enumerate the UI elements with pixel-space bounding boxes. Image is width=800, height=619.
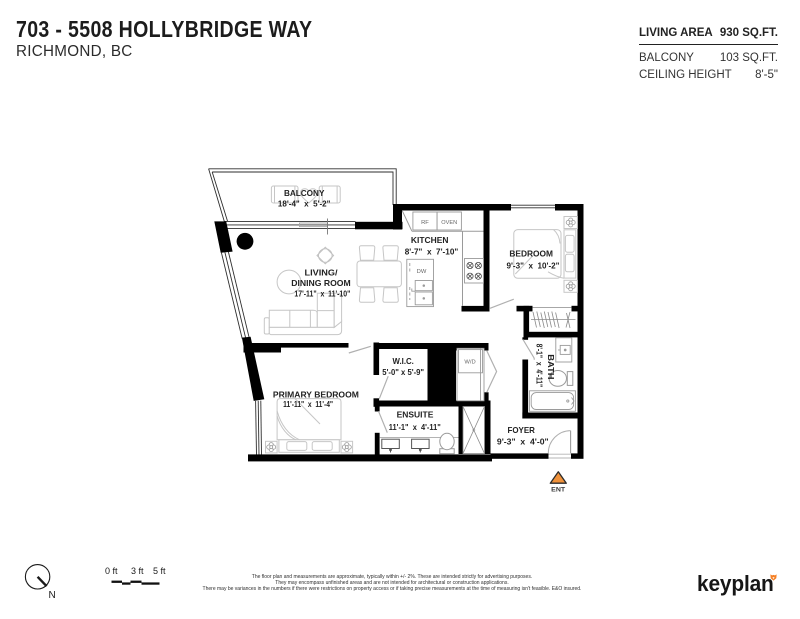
svg-text:FOYER: FOYER bbox=[508, 425, 535, 435]
svg-text:8'-1" x 4'-11": 8'-1" x 4'-11" bbox=[535, 344, 544, 388]
svg-text:W/D: W/D bbox=[464, 359, 475, 365]
svg-text:BALCONY: BALCONY bbox=[284, 188, 325, 198]
svg-text:8'-7" x 7'-10": 8'-7" x 7'-10" bbox=[405, 248, 459, 257]
svg-text:9'-3" x 10'-2": 9'-3" x 10'-2" bbox=[507, 262, 560, 271]
svg-text:DW: DW bbox=[417, 269, 427, 275]
svg-text:9'-3" x 4'-0": 9'-3" x 4'-0" bbox=[497, 438, 549, 447]
svg-text:DINING ROOM: DINING ROOM bbox=[291, 278, 350, 288]
svg-text:KITCHEN: KITCHEN bbox=[411, 235, 449, 245]
svg-text:5'-0" x 5'-9": 5'-0" x 5'-9" bbox=[382, 368, 424, 377]
svg-text:BATH: BATH bbox=[546, 354, 556, 379]
svg-text:17'-11" x 11'-10": 17'-11" x 11'-10" bbox=[294, 289, 350, 298]
svg-text:11'-11" x 11'-4": 11'-11" x 11'-4" bbox=[283, 400, 333, 409]
svg-text:BEDROOM: BEDROOM bbox=[509, 248, 553, 258]
svg-text:PRIMARY BEDROOM: PRIMARY BEDROOM bbox=[273, 389, 359, 399]
svg-text:RF: RF bbox=[421, 220, 429, 226]
svg-text:ENSUITE: ENSUITE bbox=[397, 410, 434, 420]
svg-text:LIVING/: LIVING/ bbox=[305, 268, 339, 278]
svg-text:18'-4" x 5'-2": 18'-4" x 5'-2" bbox=[278, 200, 331, 209]
svg-text:W.I.C.: W.I.C. bbox=[393, 356, 414, 366]
svg-text:11'-1" x 4'-11": 11'-1" x 4'-11" bbox=[389, 423, 441, 432]
svg-text:ENT: ENT bbox=[551, 486, 566, 493]
svg-text:OVEN: OVEN bbox=[441, 220, 457, 226]
svg-text:N: N bbox=[49, 590, 56, 601]
